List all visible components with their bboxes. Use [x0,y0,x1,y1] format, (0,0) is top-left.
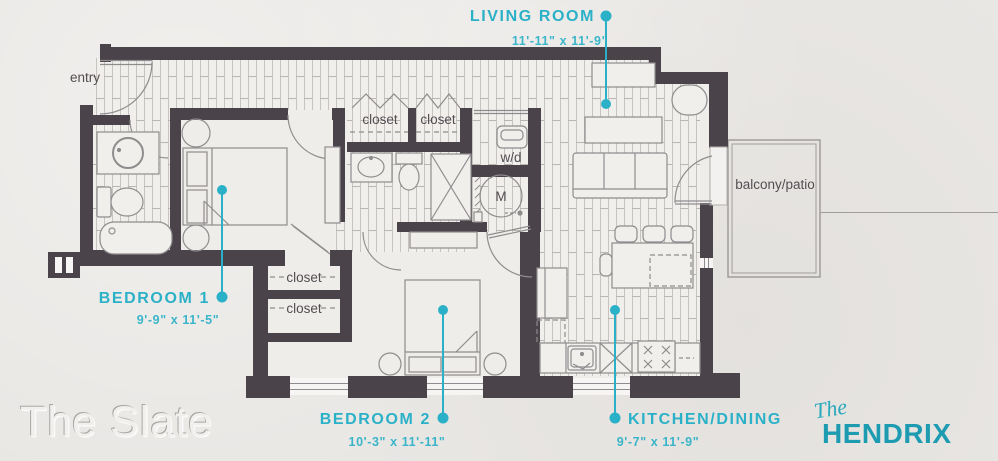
bedroom2-label: BEDROOM 2 [320,411,431,428]
stove [638,341,675,372]
floorplan-page: entry closet closet closet closet w/d M … [0,0,998,461]
sofa [573,153,667,198]
window [573,378,630,395]
exterior-notch [661,56,709,73]
kitchen-dining-label: KITCHEN/DINING [628,411,782,428]
entry-label: entry [70,70,100,85]
bedroom2-dresser [410,232,477,248]
closet-label: closet [420,112,456,127]
living-room-dims: 11'-11" x 11'-9" [512,34,608,48]
window [290,378,348,395]
bathtub [100,222,172,254]
bedroom1-dims: 9'-9" x 11'-5" [137,313,220,327]
bathroom2-vanity [351,153,392,182]
toilet [97,187,143,217]
kitchen-dining-dims: 9'-7" x 11'-9" [617,435,700,449]
building-logo: The HENDRIX [814,398,964,456]
shower [431,154,471,220]
window [427,378,483,395]
window [700,258,713,268]
balcony [728,140,998,277]
washer-dryer [497,126,527,148]
tv-console [592,63,655,87]
bathroom1-vanity [97,132,159,174]
closet-label: closet [286,301,322,316]
balcony-label: balcony/patio [735,177,815,192]
washer-dryer-label: w/d [499,150,521,165]
floorplan-drawing: entry closet closet closet closet w/d M … [0,0,998,461]
bedroom1-label: BEDROOM 1 [99,290,210,307]
mechanical-label: M [495,189,506,204]
bedroom1-bed [183,148,287,225]
floorplan-name-watermark: The Slate [20,398,213,447]
logo-building-name: HENDRIX [822,418,952,450]
bedroom2-dims: 10'-3" x 11'-11" [349,435,446,449]
living-room-label: LIVING ROOM [470,8,595,25]
coffee-table [585,117,662,143]
accent-chair [672,85,707,115]
bedroom1-dresser [325,147,340,223]
closet-label: closet [362,112,398,127]
closet-label: closet [286,270,322,285]
